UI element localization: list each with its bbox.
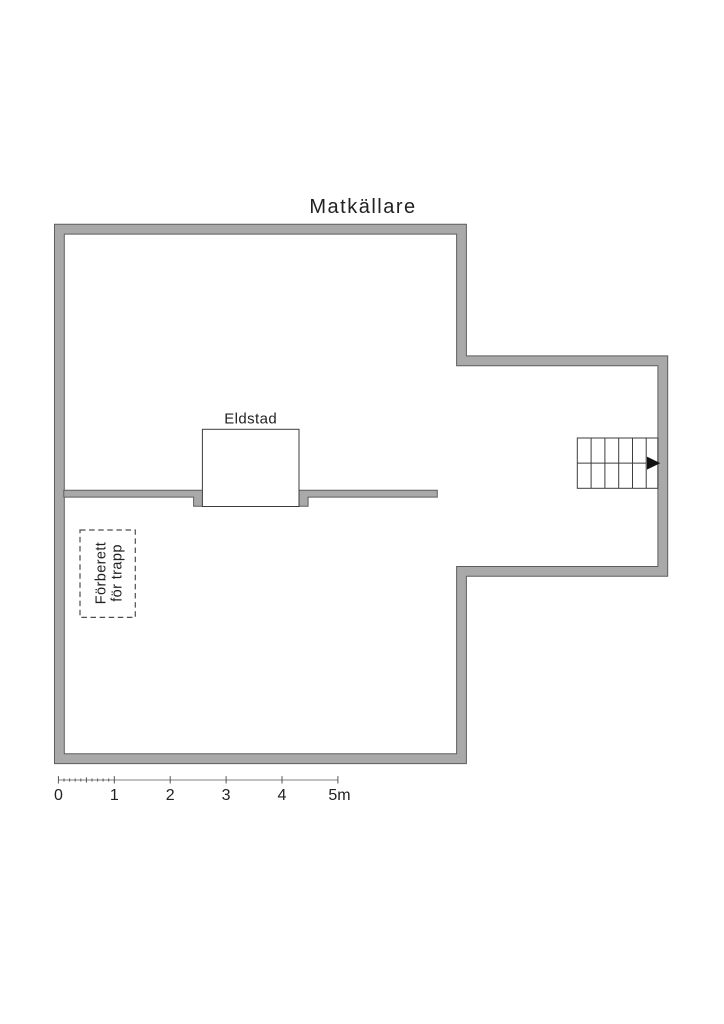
svg-text:1: 1 [110, 787, 119, 804]
svg-text:4: 4 [278, 787, 287, 804]
svg-text:Förberett: Förberett [94, 542, 110, 604]
svg-text:3: 3 [222, 787, 231, 804]
svg-text:Matkällare: Matkällare [309, 196, 416, 218]
svg-text:för trapp: för trapp [109, 544, 125, 602]
svg-text:Eldstad: Eldstad [224, 411, 277, 428]
svg-text:0: 0 [54, 787, 63, 804]
svg-text:2: 2 [166, 787, 175, 804]
svg-text:5m: 5m [328, 787, 350, 804]
